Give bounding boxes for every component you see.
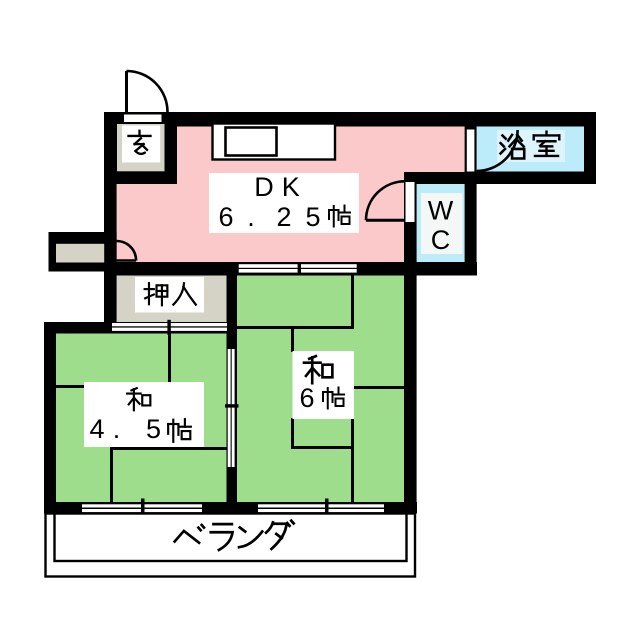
svg-text:W: W: [428, 196, 454, 226]
svg-text:5: 5: [146, 414, 161, 444]
svg-text:C: C: [431, 225, 451, 255]
svg-text:6: 6: [299, 383, 314, 413]
svg-text:.: .: [247, 202, 255, 232]
svg-text:.: .: [113, 414, 121, 444]
svg-text:6: 6: [218, 202, 233, 232]
svg-text:4: 4: [89, 414, 104, 444]
svg-text:DK: DK: [254, 172, 308, 202]
svg-text:5: 5: [305, 202, 320, 232]
svg-text:2: 2: [276, 202, 291, 232]
